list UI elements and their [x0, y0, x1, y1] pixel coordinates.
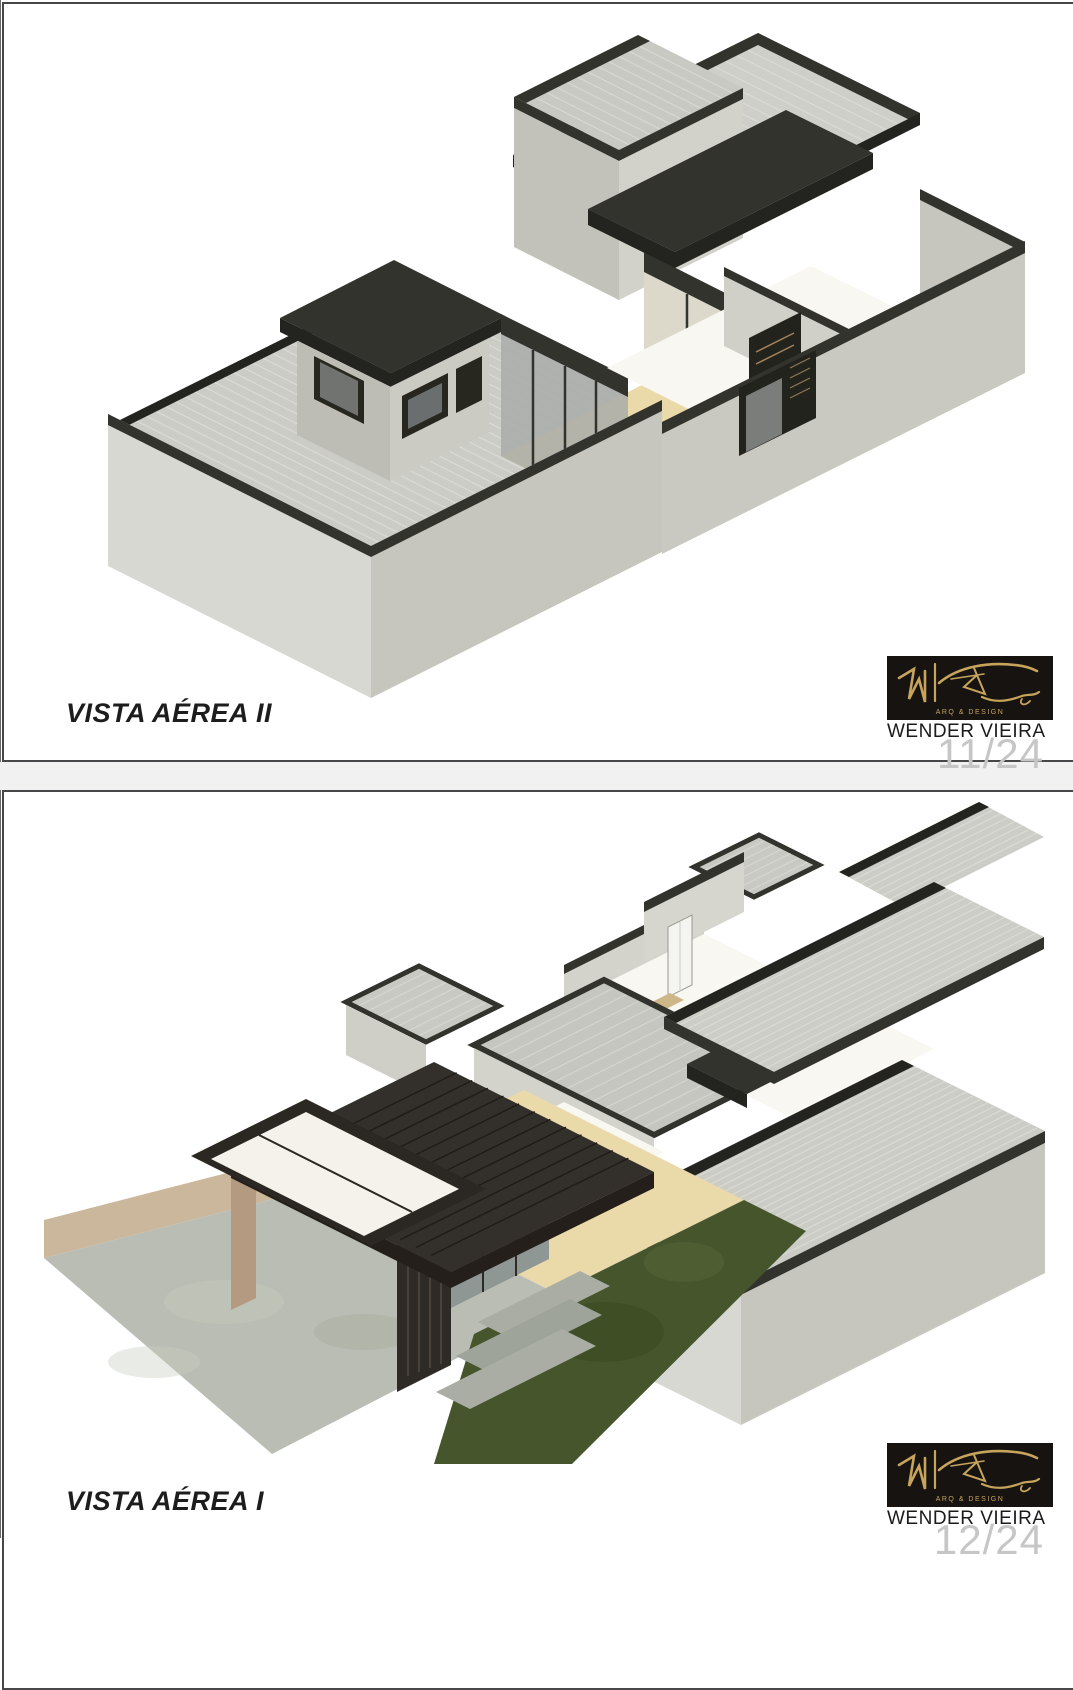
sheet-page-1: VISTA AÉREA II ARQ & DESIGN WENDER VIEIR… — [2, 2, 1073, 762]
page-number: 11/24 — [882, 730, 1044, 778]
page-title: VISTA AÉREA II — [66, 698, 272, 729]
aerial-render-vista-ii — [4, 4, 1073, 760]
page-number: 12/24 — [882, 1516, 1044, 1564]
document-viewer: { "pages": [ { "title": "VISTA AÉREA II"… — [0, 0, 1073, 1538]
sheet-page-2: VISTA AÉREA I ARQ & DESIGN WENDER VIEIRA… — [2, 790, 1073, 1690]
page-title: VISTA AÉREA I — [66, 1486, 264, 1517]
studio-logo: ARQ & DESIGN — [887, 656, 1053, 720]
aerial-render-vista-i — [4, 792, 1073, 1540]
studio-logo: ARQ & DESIGN — [887, 1443, 1053, 1507]
logo-caption: ARQ & DESIGN — [887, 1496, 1053, 1503]
logo-caption: ARQ & DESIGN — [887, 709, 1053, 716]
